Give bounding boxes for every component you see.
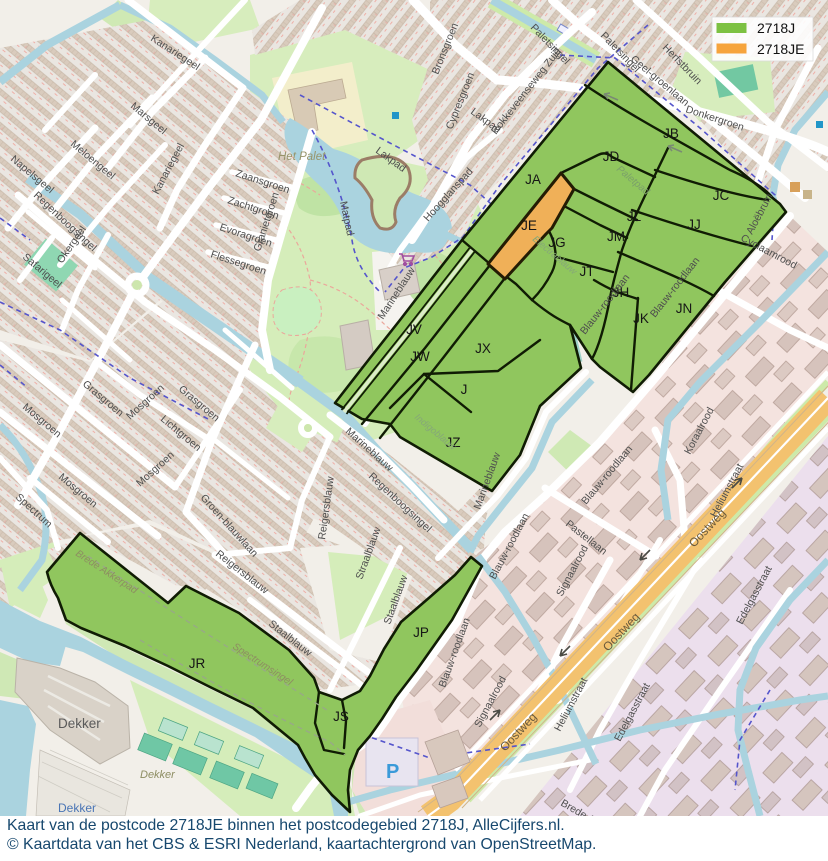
svg-text:2718J: 2718J xyxy=(757,20,795,36)
svg-text:Dekker: Dekker xyxy=(58,716,101,731)
svg-text:JP: JP xyxy=(413,625,429,640)
svg-text:JM: JM xyxy=(607,229,625,244)
svg-text:P: P xyxy=(386,761,399,783)
svg-text:JB: JB xyxy=(663,126,679,141)
svg-text:JN: JN xyxy=(676,301,693,316)
svg-text:Dekker: Dekker xyxy=(140,769,176,781)
svg-text:Dekker: Dekker xyxy=(58,801,96,815)
svg-text:2718JE: 2718JE xyxy=(757,41,804,57)
svg-text:JX: JX xyxy=(475,341,491,356)
svg-text:JW: JW xyxy=(410,349,430,364)
svg-text:JE: JE xyxy=(521,218,537,233)
svg-text:Het Palet: Het Palet xyxy=(278,151,326,163)
svg-text:JR: JR xyxy=(189,656,206,671)
svg-text:JJ: JJ xyxy=(687,217,701,232)
svg-text:JV: JV xyxy=(406,322,422,337)
svg-text:J: J xyxy=(461,382,468,397)
svg-text:JS: JS xyxy=(333,709,349,724)
svg-text:JL: JL xyxy=(627,209,642,224)
svg-text:JA: JA xyxy=(525,172,541,187)
svg-text:JK: JK xyxy=(633,311,649,326)
svg-text:JD: JD xyxy=(603,149,620,164)
svg-text:JC: JC xyxy=(713,188,730,203)
svg-text:JT: JT xyxy=(580,264,595,279)
